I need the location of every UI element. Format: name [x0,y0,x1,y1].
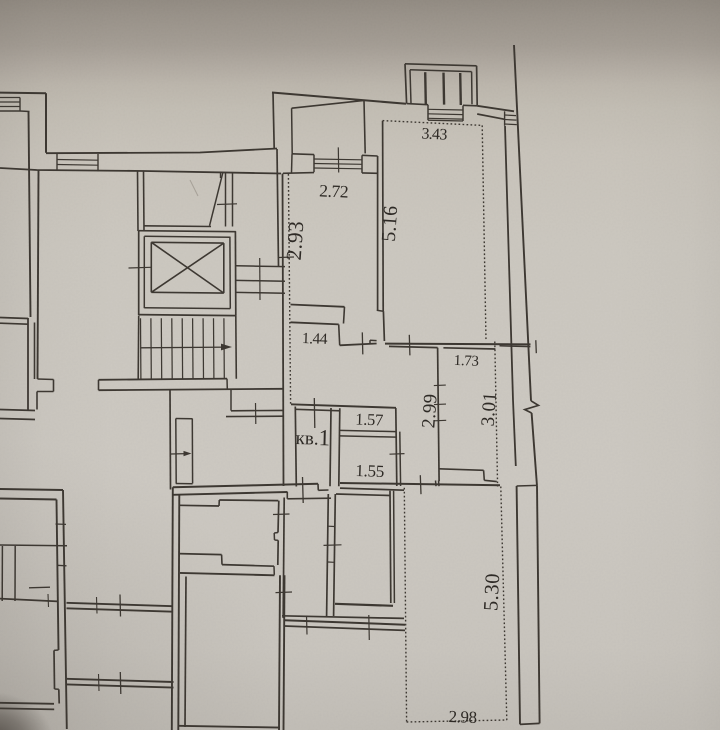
svg-text:1.57: 1.57 [355,410,383,430]
svg-text:2.99: 2.99 [418,393,441,429]
svg-text:кв.1: кв.1 [295,425,330,451]
svg-text:2.98: 2.98 [448,707,477,727]
svg-text:3.01: 3.01 [478,391,501,427]
svg-text:5.16: 5.16 [378,205,402,243]
svg-text:2.93: 2.93 [282,220,309,261]
svg-text:3.43: 3.43 [421,125,448,143]
svg-text:1.44: 1.44 [302,330,328,348]
svg-text:2.72: 2.72 [319,180,349,201]
svg-text:5.30: 5.30 [480,572,504,611]
svg-text:1.55: 1.55 [355,461,384,481]
svg-text:1.73: 1.73 [454,353,479,370]
